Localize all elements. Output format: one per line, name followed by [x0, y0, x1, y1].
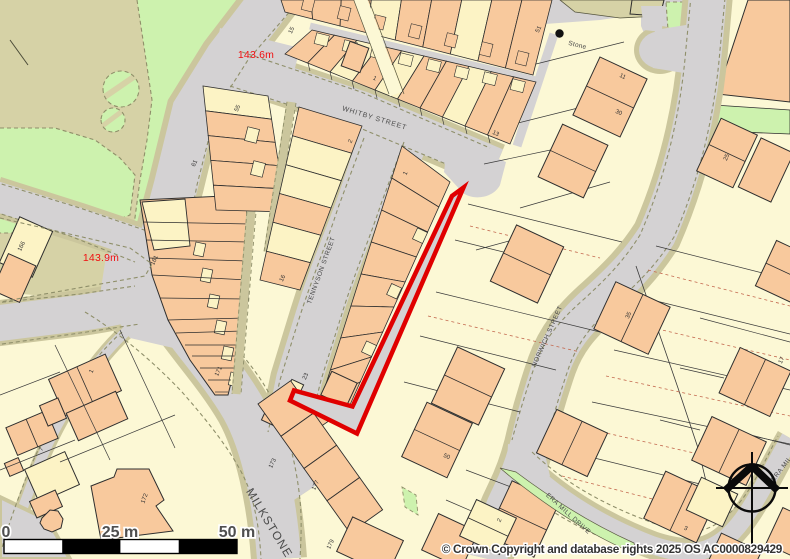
svg-text:0: 0 — [2, 524, 11, 541]
svg-text:50 m: 50 m — [219, 524, 255, 541]
svg-text:143.6m: 143.6m — [238, 49, 274, 61]
svg-text:143.9m: 143.9m — [83, 252, 119, 264]
svg-text:25 m: 25 m — [102, 524, 138, 541]
svg-text:© Crown Copyright and database: © Crown Copyright and database rights 20… — [442, 542, 783, 556]
